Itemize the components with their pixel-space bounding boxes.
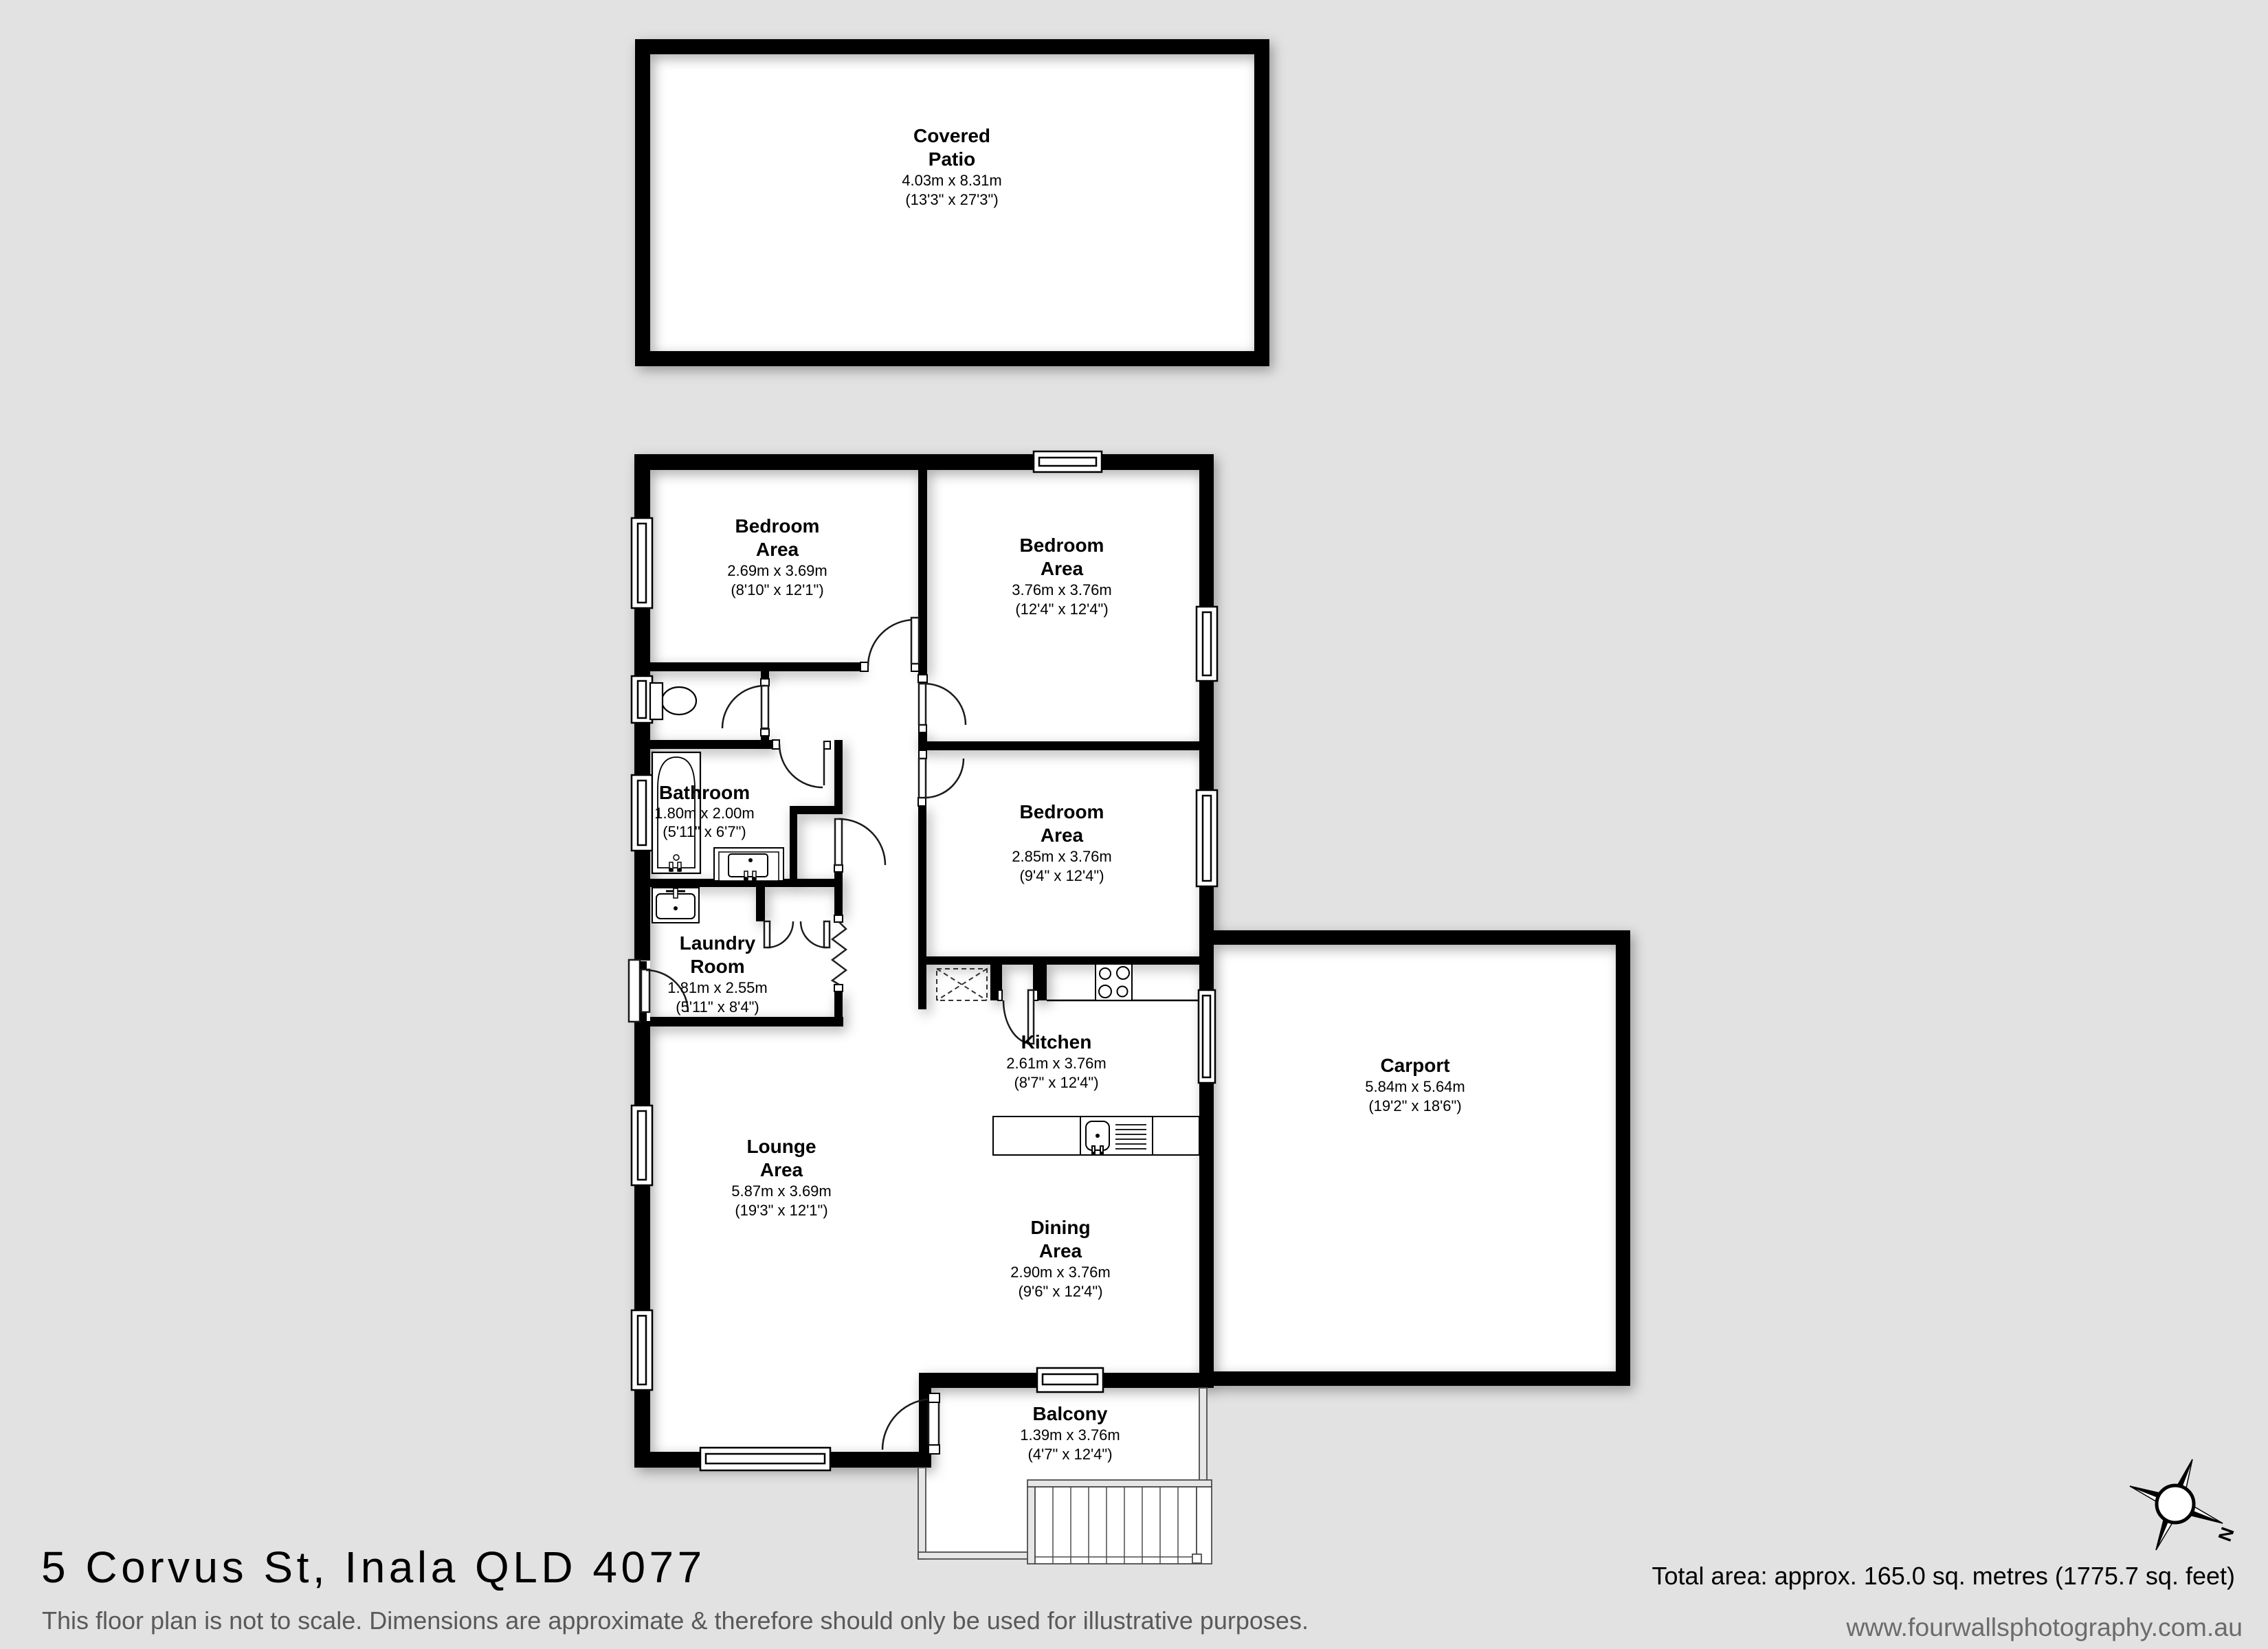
svg-text:5 Corvus St, Inala QLD 4077: 5 Corvus St, Inala QLD 4077 [41, 1543, 706, 1592]
svg-text:2.85m x 3.76m: 2.85m x 3.76m [1012, 848, 1112, 865]
svg-text:(9'4" x 12'4"): (9'4" x 12'4") [1019, 867, 1104, 884]
svg-text:Dining: Dining [1030, 1217, 1090, 1238]
svg-text:(4'7" x 12'4"): (4'7" x 12'4") [1027, 1446, 1112, 1463]
svg-text:Bedroom: Bedroom [1020, 801, 1104, 822]
svg-text:Area: Area [756, 539, 799, 560]
svg-text:Patio: Patio [929, 148, 975, 170]
svg-text:Covered: Covered [913, 125, 990, 146]
svg-text:(19'2" x 18'6"): (19'2" x 18'6") [1368, 1097, 1461, 1114]
svg-text:This floor plan is not to scal: This floor plan is not to scale. Dimensi… [42, 1606, 1309, 1635]
svg-text:2.69m x 3.69m: 2.69m x 3.69m [727, 562, 827, 579]
svg-text:Kitchen: Kitchen [1021, 1031, 1092, 1053]
svg-text:Lounge: Lounge [746, 1136, 816, 1157]
svg-text:(9'6" x 12'4"): (9'6" x 12'4") [1018, 1283, 1102, 1300]
svg-text:Area: Area [1039, 1240, 1082, 1261]
svg-text:(8'10" x 12'1"): (8'10" x 12'1") [731, 581, 823, 598]
svg-text:Balcony: Balcony [1033, 1403, 1108, 1424]
svg-text:(5'11" x 6'7"): (5'11" x 6'7") [663, 823, 746, 840]
svg-text:(5'11" x 8'4"): (5'11" x 8'4") [676, 998, 759, 1016]
svg-text:4.03m x 8.31m: 4.03m x 8.31m [902, 172, 1002, 189]
svg-text:2.61m x 3.76m: 2.61m x 3.76m [1006, 1055, 1107, 1072]
svg-text:1.81m x 2.55m: 1.81m x 2.55m [667, 979, 768, 996]
svg-text:Laundry: Laundry [680, 932, 756, 954]
svg-text:(19'3" x 12'1"): (19'3" x 12'1") [735, 1202, 827, 1219]
svg-text:Bathroom: Bathroom [659, 782, 750, 803]
svg-text:Total area: approx. 165.0 sq.: Total area: approx. 165.0 sq. metres (17… [1652, 1562, 2235, 1590]
svg-text:Area: Area [1041, 558, 1084, 579]
svg-text:5.87m x 3.69m: 5.87m x 3.69m [731, 1182, 832, 1200]
svg-text:5.84m x 5.64m: 5.84m x 5.64m [1365, 1078, 1465, 1095]
svg-text:Room: Room [690, 956, 744, 977]
svg-text:(12'4" x 12'4"): (12'4" x 12'4") [1015, 601, 1108, 618]
svg-text:1.80m x 2.00m: 1.80m x 2.00m [654, 805, 755, 822]
svg-text:Bedroom: Bedroom [735, 515, 820, 537]
svg-text:(8'7" x 12'4"): (8'7" x 12'4") [1014, 1074, 1098, 1091]
svg-text:Area: Area [1041, 824, 1084, 846]
svg-text:3.76m x 3.76m: 3.76m x 3.76m [1012, 581, 1112, 598]
svg-text:(13'3" x 27'3"): (13'3" x 27'3") [905, 191, 998, 208]
svg-text:Bedroom: Bedroom [1020, 535, 1104, 556]
svg-text:2.90m x 3.76m: 2.90m x 3.76m [1010, 1264, 1111, 1281]
svg-text:Carport: Carport [1380, 1055, 1449, 1076]
svg-text:www.fourwallsphotography.com.a: www.fourwallsphotography.com.au [1845, 1613, 2243, 1641]
svg-text:Area: Area [760, 1159, 803, 1180]
svg-text:1.39m x 3.76m: 1.39m x 3.76m [1020, 1426, 1120, 1444]
